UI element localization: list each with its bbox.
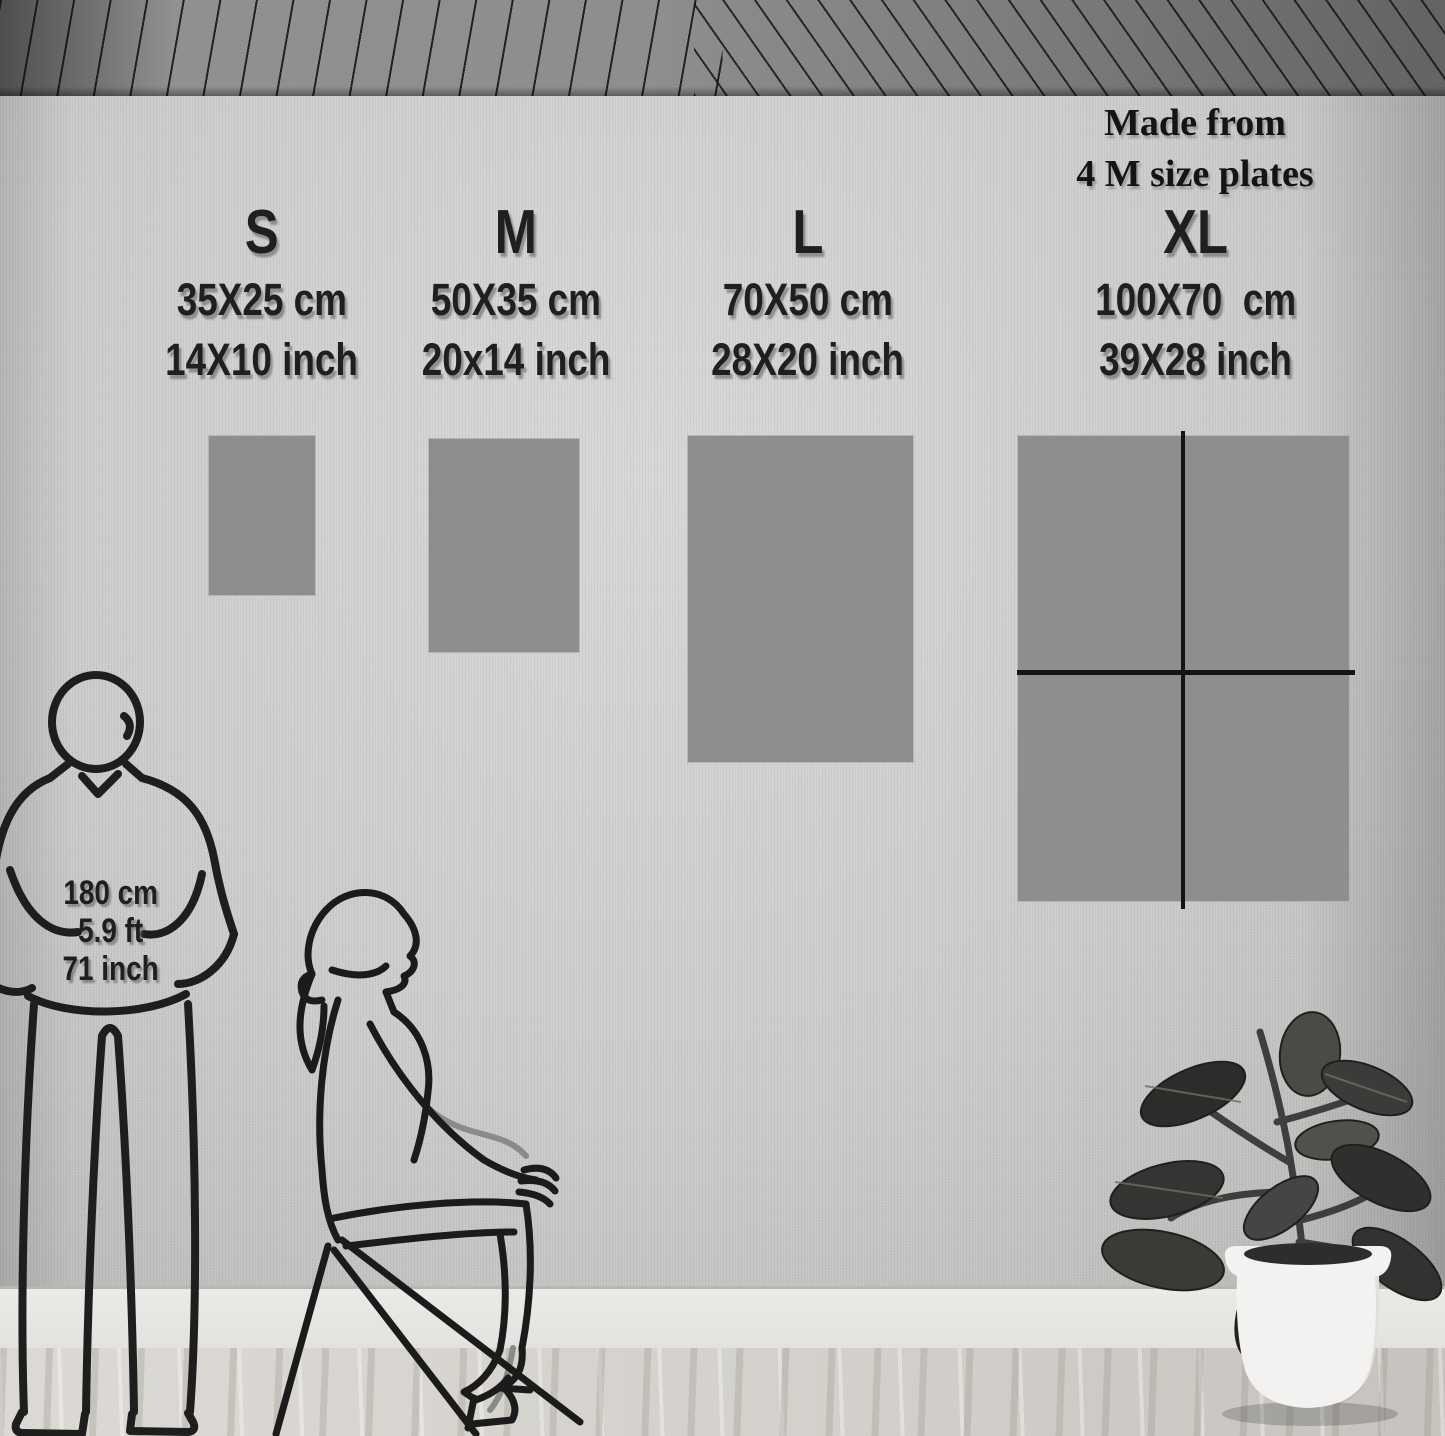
- plant-pot: [1225, 1246, 1392, 1408]
- xl-note-line2: 4 M size plates: [1010, 149, 1380, 200]
- xl-note: Made from 4 M size plates: [1010, 98, 1380, 200]
- size-xl-inch: 39X28 inch: [1100, 330, 1293, 390]
- size-rect-m: [428, 438, 580, 653]
- xl-note-line1: Made from: [1010, 98, 1380, 149]
- wood-slat-ceiling: [0, 0, 1445, 96]
- size-m-cm: 50X35 cm: [431, 270, 601, 330]
- pot-soil: [1244, 1243, 1372, 1265]
- person-height-cm: 180 cm: [63, 874, 158, 912]
- sitting-woman-figure: [268, 878, 590, 1436]
- size-s-cm: 35X25 cm: [177, 270, 347, 330]
- standing-man-figure: [0, 664, 256, 1436]
- size-s-inch: 14X10 inch: [166, 330, 359, 390]
- size-l-inch: 28X20 inch: [712, 330, 905, 390]
- size-m-inch: 20x14 inch: [422, 330, 611, 390]
- person-height-label: 180 cm 5.9 ft 71 inch: [8, 874, 213, 988]
- size-column-xl: XL 100X70 cm 39X28 inch: [1036, 196, 1356, 390]
- size-m-label: M: [495, 196, 537, 270]
- size-column-m: M 50X35 cm 20x14 inch: [356, 196, 676, 390]
- size-rect-xl: [1017, 435, 1350, 902]
- size-column-l: L 70X50 cm 28X20 inch: [648, 196, 968, 390]
- size-rect-s: [208, 435, 316, 596]
- size-xl-label: XL: [1164, 196, 1229, 270]
- size-l-label: L: [792, 196, 823, 270]
- xl-plate-divider-horizontal: [1017, 670, 1355, 675]
- size-chart-scene: Made from 4 M size plates S 35X25 cm 14X…: [0, 0, 1445, 1436]
- size-s-label: S: [245, 196, 279, 270]
- person-height-inch: 71 inch: [62, 950, 158, 988]
- potted-plant: [1075, 1002, 1445, 1436]
- person-height-ft: 5.9 ft: [78, 912, 143, 950]
- size-rect-l: [687, 435, 914, 763]
- size-xl-cm: 100X70 cm: [1095, 270, 1296, 330]
- size-l-cm: 70X50 cm: [723, 270, 893, 330]
